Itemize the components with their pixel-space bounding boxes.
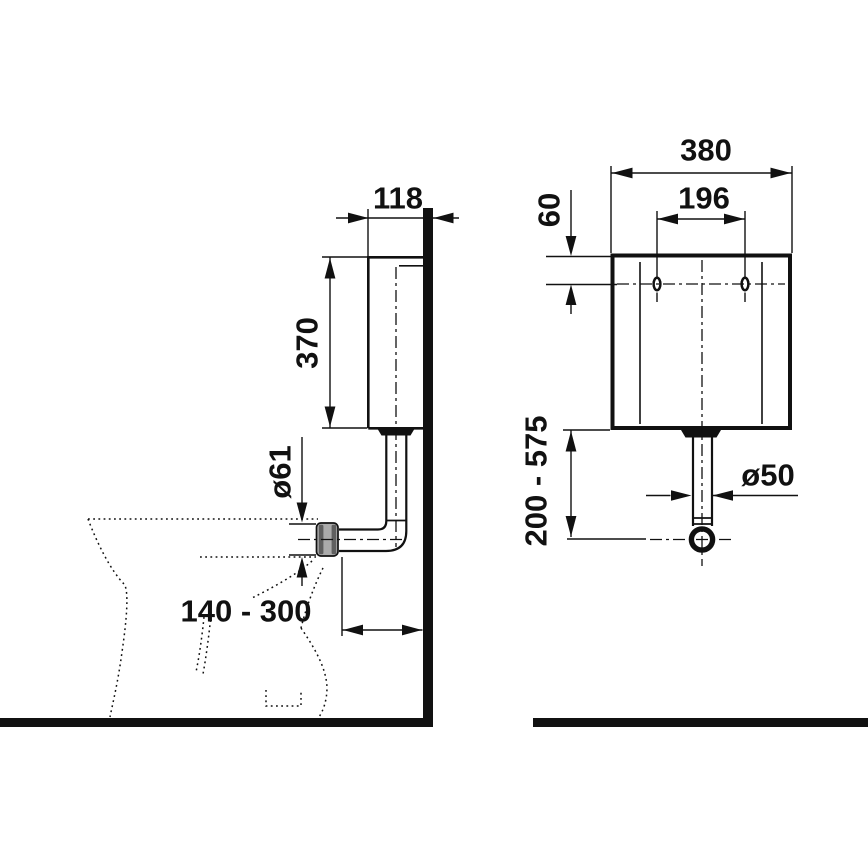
outlet-flange-front [681,430,721,438]
dim-200-575 [563,430,646,539]
cistern-front [613,256,791,429]
drawing-canvas [0,0,868,868]
flush-pipe-front [681,430,721,550]
dim-label-hole-spacing: 196 [678,183,730,214]
floor-side [0,718,433,727]
dim-label-width: 380 [680,135,732,166]
dim-label-depth: 118 [373,183,423,214]
technical-drawing: 118 370 ø61 140 - 300 380 196 60 200 - 5… [0,0,868,868]
dim-label-wall-to-flushpipe: 140 - 300 [181,596,312,627]
floor-front [533,718,868,727]
flush-pipe-side [339,428,415,551]
front-view [533,166,868,727]
dim-label-height: 370 [292,317,323,369]
mounting-holes [654,278,749,302]
side-view [0,208,459,727]
dim-370 [322,257,367,428]
dim-label-flushpipe-length: 200 - 575 [521,416,552,547]
wall-section [423,208,433,718]
dim-140-300 [342,557,423,636]
dim-label-connector-diameter: ø61 [265,445,296,498]
dim-196 [657,211,745,278]
centerlines-front [617,260,785,566]
dim-118 [336,209,459,256]
dim-label-flushpipe-diameter: ø50 [741,460,794,491]
dim-label-top-to-holes: 60 [534,193,565,227]
